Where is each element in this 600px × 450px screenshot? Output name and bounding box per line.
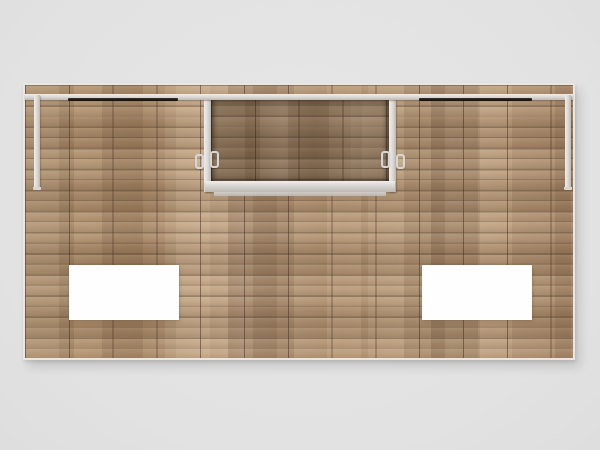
recess-ledge-lip: [214, 192, 386, 196]
mount-clip-left-outer: [195, 154, 204, 169]
recess-left-post: [204, 95, 211, 192]
studio-background: [0, 0, 600, 450]
mount-clip-right-inner: [381, 151, 390, 168]
monitor-recess: [204, 95, 396, 196]
exhibit-wall: [23, 83, 575, 360]
recess-right-post: [389, 95, 396, 192]
recess-bottom-ledge: [205, 181, 395, 192]
left-graphic-panel: [69, 265, 179, 320]
right-graphic-panel: [422, 265, 532, 320]
left-frame-post: [34, 95, 40, 187]
mount-clip-left-inner: [210, 151, 219, 168]
recess-shaded-surface: [211, 95, 389, 181]
right-light-bar: [419, 98, 532, 102]
left-light-bar: [68, 98, 178, 102]
mount-clip-right-outer: [396, 154, 405, 169]
right-frame-post: [565, 95, 571, 187]
